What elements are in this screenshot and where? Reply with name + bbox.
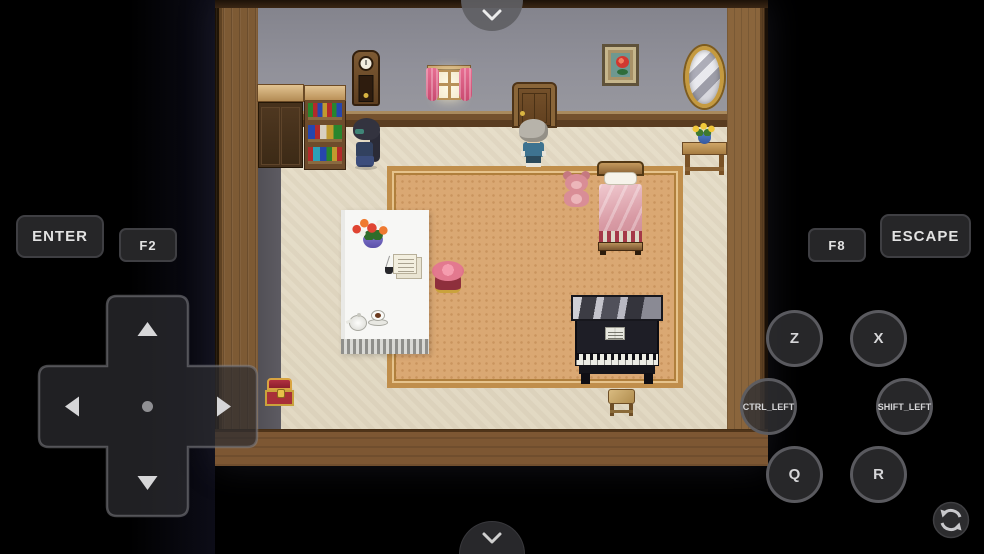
window-panes — [437, 70, 461, 100]
npc1-headband — [355, 129, 364, 134]
r-button[interactable]: R — [850, 446, 907, 503]
q-button[interactable]: Q — [766, 446, 823, 503]
shift-left-button-label: SHIFT_LEFT — [878, 402, 932, 412]
chest-lock — [277, 389, 285, 398]
grandfather-clock — [352, 50, 380, 106]
z-button-label: Z — [790, 330, 799, 347]
curtain-right — [459, 68, 472, 101]
dpad-center-dot — [142, 401, 153, 412]
rose-picture — [602, 44, 639, 86]
bottom-panel-toggle[interactable] — [459, 521, 525, 554]
clock-pendulum — [359, 75, 374, 102]
z-button[interactable]: Z — [766, 310, 823, 367]
npc2-body — [523, 142, 544, 157]
npc1-skirt — [356, 156, 374, 167]
bed-pillow — [604, 172, 637, 185]
rotate-icon — [932, 501, 970, 539]
f2-button[interactable]: F2 — [119, 228, 177, 262]
npc-dark-haired — [350, 118, 384, 170]
pink-stool — [432, 261, 464, 294]
r-button-label: R — [873, 466, 884, 483]
enter-button-label: ENTER — [32, 228, 88, 245]
wardrobe — [257, 84, 304, 168]
side-table-legs — [685, 155, 724, 175]
wooden-stool — [606, 389, 638, 420]
x-button[interactable]: X — [850, 310, 907, 367]
f8-button-label: F8 — [828, 238, 845, 253]
stool-top — [608, 389, 635, 404]
book-row — [308, 103, 342, 120]
dpad-cross — [36, 293, 260, 519]
escape-button[interactable]: ESCAPE — [880, 214, 971, 258]
tea-set — [347, 308, 389, 335]
book-row — [308, 147, 342, 164]
piano-leg — [581, 373, 590, 384]
npc2-feet — [526, 163, 541, 167]
rose-art — [611, 53, 630, 77]
piano — [571, 295, 663, 384]
teddy-bear — [562, 171, 591, 209]
gold-mirror — [685, 46, 724, 108]
dpad[interactable] — [36, 293, 260, 519]
book-row — [308, 125, 342, 142]
treasure-chest — [265, 378, 294, 407]
wardrobe-top — [257, 84, 304, 102]
piano-lid — [571, 295, 663, 321]
game-screen[interactable] — [215, 0, 768, 466]
flower-bouquet — [351, 216, 389, 240]
q-button-label: Q — [789, 466, 801, 483]
curtained-window — [427, 65, 471, 106]
teapot — [349, 315, 367, 331]
letters — [393, 254, 417, 274]
bed-blanket — [599, 184, 642, 233]
white-table — [341, 210, 429, 354]
ctrl-left-button-label: CTRL_LEFT — [743, 402, 795, 412]
table-fringe — [341, 339, 429, 354]
stool-legs — [610, 404, 633, 416]
wardrobe-doors — [258, 102, 303, 168]
f8-button[interactable]: F8 — [808, 228, 866, 262]
clock-face — [359, 56, 374, 71]
enter-button[interactable]: ENTER — [16, 215, 104, 258]
npc2-hair — [519, 119, 548, 142]
x-button-label: X — [873, 330, 883, 347]
bed — [597, 161, 644, 254]
teddy-muzzle — [571, 181, 582, 189]
emulator-stage: ENTER F2 F8 ESCAPE Z X CTRL_LEFT SHIFT_L… — [0, 0, 984, 554]
flower-side-table — [682, 128, 727, 176]
ctrl-left-button[interactable]: CTRL_LEFT — [740, 378, 797, 435]
chevron-down-icon — [480, 8, 504, 23]
npc-gray-haired — [517, 119, 551, 169]
teacup — [371, 310, 385, 321]
bookshelf-top — [304, 85, 346, 101]
rotate-screen-button[interactable] — [932, 501, 970, 539]
sheet-music — [605, 327, 625, 340]
quill-and-ink — [383, 256, 395, 274]
teddy-belly — [571, 194, 582, 204]
bookshelf — [304, 86, 346, 170]
curtain-left — [426, 68, 439, 101]
bed-footboard — [598, 242, 643, 251]
bottom-wood-floor — [215, 429, 768, 466]
f2-button-label: F2 — [139, 238, 156, 253]
door-knob — [520, 111, 525, 116]
yellow-flowers — [690, 123, 719, 136]
chevron-down-icon — [480, 531, 504, 546]
escape-button-label: ESCAPE — [892, 228, 960, 245]
piano-leg — [644, 373, 653, 384]
pouf-cushion — [432, 261, 464, 281]
shift-left-button[interactable]: SHIFT_LEFT — [876, 378, 933, 435]
